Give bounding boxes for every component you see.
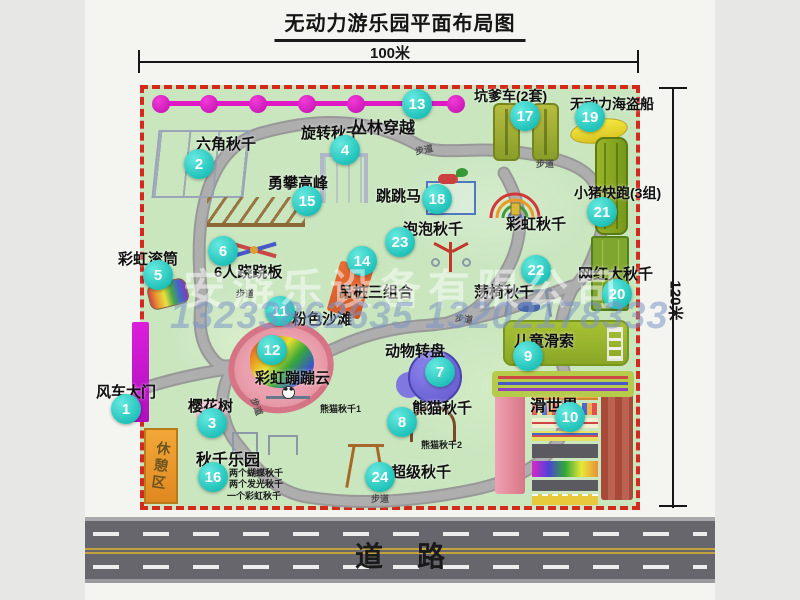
slide-rainbow-bar [532,461,598,477]
seesaw-hub [250,246,258,254]
swing-park-icon [232,430,302,456]
zipline-dot-icon [347,95,365,113]
screenshot-stage: 无动力游乐园平面布局图 100米 120米 [0,0,800,600]
rest-area-box: 休憩区 [144,428,178,504]
bubble-pole [449,242,452,272]
six-person-seesaw-icon [230,234,278,266]
small-swing-frame [232,432,258,454]
cable-line [498,388,628,391]
panda-swing-2-icon [410,406,456,442]
chair-swing-icon [504,288,552,318]
jumping-horse-icon [426,181,476,215]
swing-seat [518,302,540,312]
kengdie-track-icon [493,103,520,161]
track-line [604,143,606,229]
swing-leg [345,444,356,488]
track-line [616,143,618,229]
cable-line [498,382,628,385]
slide-pink-slab [495,380,525,494]
zipline-dot-icon [298,95,316,113]
swing-leg [545,291,552,317]
rainbow-bounce-cloud-icon [250,336,314,388]
pig-run-track-icon [595,137,628,235]
road: 道路 [85,517,715,583]
bubble-arm [451,242,468,253]
climbing-peak-icon [207,197,305,227]
panda-swing-1-icon [266,390,310,418]
bubble-ring [431,258,440,267]
animal-carousel-icon [408,350,462,404]
super-swing-icon [346,444,386,488]
slide-bar [532,494,598,505]
rainbow-swing-icon [486,176,544,222]
track-centerline [505,109,508,155]
big-swing-area-icon [591,236,629,311]
swing-leg [504,291,511,317]
dimension-tick-right-top [659,87,687,89]
kengdie-track-icon [532,103,559,161]
horse-leaf [456,168,468,177]
slide-bar [532,403,598,415]
dimension-label-height: 120米 [666,280,687,320]
cable-line [498,376,628,379]
slide-bar [532,480,598,491]
zipline-dot-icon [447,95,465,113]
swing-leg [375,444,386,488]
bubble-swing-icon [430,240,472,274]
rotating-swing-icon [320,153,368,203]
kids-zipline-cables-icon [492,371,634,397]
zipline-dot-icon [249,95,267,113]
slide-bar [532,418,598,428]
ladder-icon [607,327,623,361]
zipline-dot-icon [152,95,170,113]
road-label: 道路 [85,535,715,575]
rest-area-label: 休憩区 [148,439,175,492]
area-line [618,240,619,307]
hexagon-swing-icon [151,130,250,198]
page-title: 无动力游乐园平面布局图 [275,7,526,42]
area-line [602,240,603,307]
slide-bar [532,431,598,441]
zipline-dot-icon [200,95,218,113]
bubble-ring [462,258,471,267]
dimension-label-width: 100米 [140,42,640,63]
horse-blob [438,174,458,184]
slide-bar [532,444,598,458]
kids-zipline-box-icon [503,320,629,366]
track-centerline [544,109,547,155]
swing-topbar [348,444,384,447]
panda-face-icon [282,386,295,399]
windmill-gate-icon [132,322,149,422]
small-swing-frame [268,435,298,455]
dimension-tick-right-bottom [659,505,687,507]
cherry-tree-icon [196,400,226,428]
